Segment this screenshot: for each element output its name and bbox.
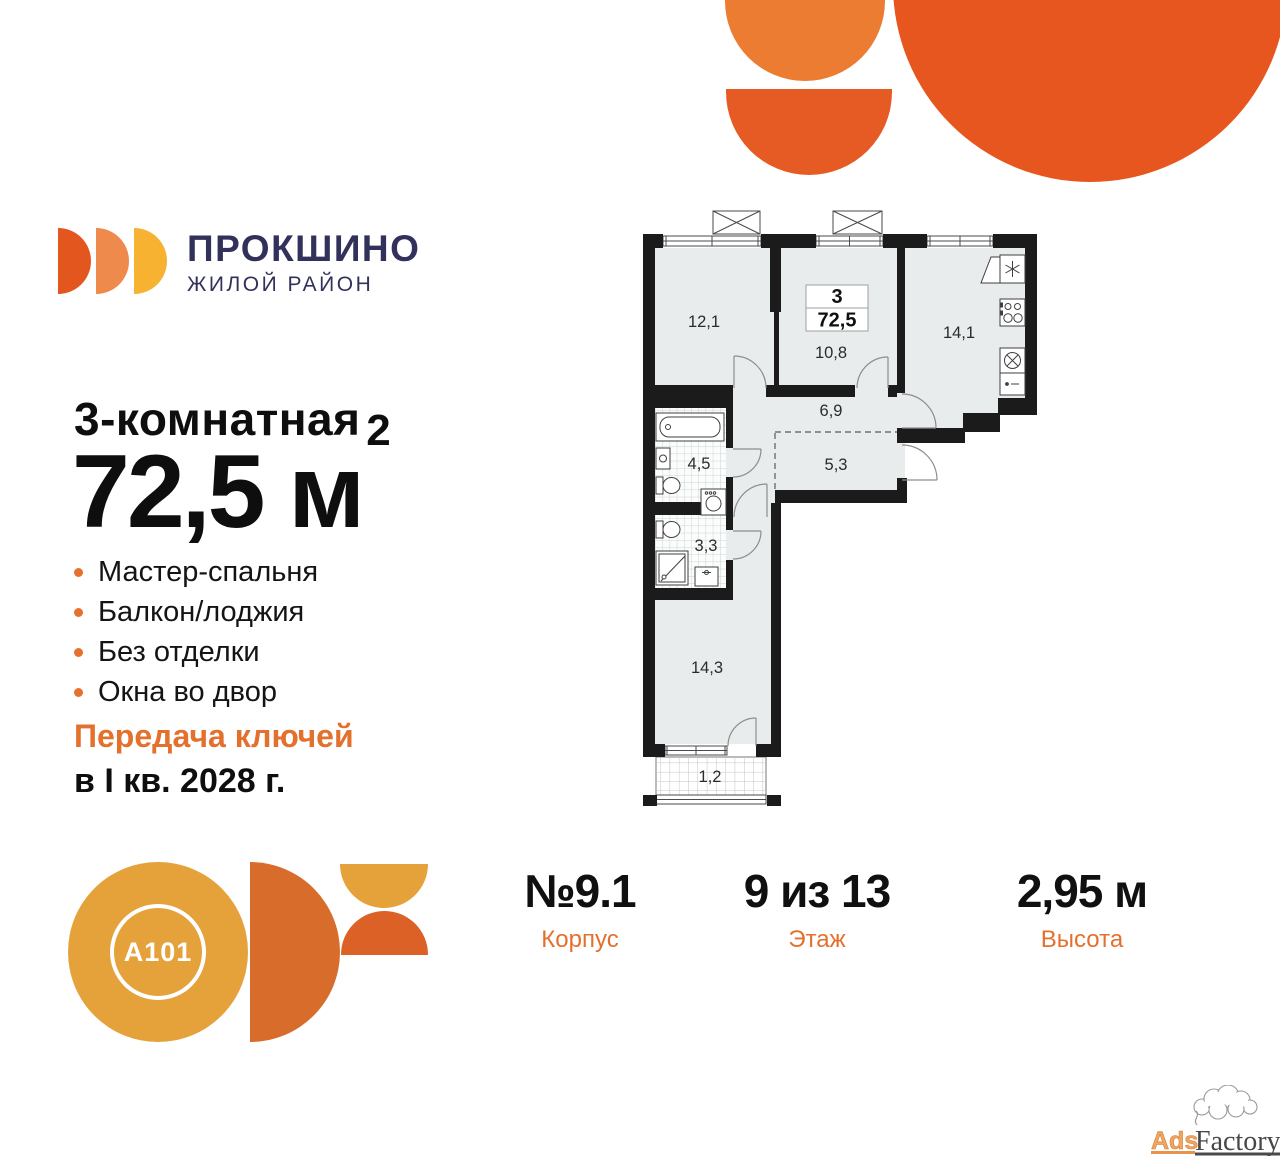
watermark-underline-orange [1151,1151,1195,1154]
vent-shaft-icons [713,211,882,234]
handover-block: Передача ключей в I кв. 2028 г. [74,720,354,798]
room-area-hallway: 6,9 [820,402,843,420]
shower-icon [656,551,688,585]
handover-title: Передача ключей [74,720,354,752]
bathtub-icon [656,413,724,441]
feature-item: Мастер-спальня [74,552,318,592]
room-area-balcony: 1,2 [699,768,722,786]
feature-label: Окна во двор [98,676,277,709]
building-number: №9.1 [470,868,690,914]
smoke-cloud-icon [1194,1085,1257,1125]
bullet-icon [74,648,83,657]
watermark: Ads Factory [1140,1085,1280,1160]
feature-item: Окна во двор [74,672,318,712]
logo-halfdisc-mid-icon [96,228,129,294]
a101-halfdisc-icon [250,862,340,1042]
floor-number: 9 из 13 [707,868,927,914]
floor-label: Этаж [707,928,927,952]
toilet-icon [656,477,680,494]
detail-floor: 9 из 13 Этаж [707,868,927,952]
brand-logo: ПРОКШИНО ЖИЛОЙ РАЙОН [58,228,420,295]
decor-large-circle-icon [893,0,1280,182]
stove-icon [1000,299,1025,326]
a101-hourglass-bottom-icon [341,911,428,955]
brand-wordmark: ПРОКШИНО [187,230,420,267]
sink-icon [695,567,718,586]
bullet-icon [74,688,83,697]
room-area-kitchen: 14,1 [943,324,975,342]
feature-item: Без отделки [74,632,318,672]
room-area-bathroom: 4,5 [688,455,711,473]
area-value: 72,5 м [72,434,362,550]
watermark-ads-text: Ads [1151,1127,1198,1155]
listing-poster: ПРОКШИНО ЖИЛОЙ РАЙОН 3-комнатная 72,5 м2… [0,0,1280,1160]
floor-plan: 3 72,5 12,1 10,8 14,1 6,9 4,5 5,3 3,3 14… [630,195,1060,815]
detail-building: №9.1 Корпус [470,868,690,952]
decor-semicircle-dark-icon [726,89,892,175]
kitchen-sink-icon [1000,348,1025,373]
brand-text: ПРОКШИНО ЖИЛОЙ РАЙОН [187,228,420,295]
sink-icon [656,448,670,469]
feature-label: Мастер-спальня [98,556,318,589]
building-label: Корпус [470,928,690,952]
plan-info-box: 3 72,5 [806,285,868,332]
logo-halfdisc-yellow-icon [134,228,167,294]
ceiling-height-value: 2,95 м [972,868,1192,914]
detail-ceiling-height: 2,95 м Высота [972,868,1192,952]
brand-logo-marks-icon [58,228,167,294]
bullet-icon [74,568,83,577]
room-area-bedroom-1: 12,1 [688,313,720,331]
ceiling-height-label: Высота [972,928,1192,952]
a101-hourglass-top-icon [340,864,428,908]
feature-label: Без отделки [98,636,260,669]
room-area-bedroom-2: 10,8 [815,344,847,362]
decor-semicircle-light-icon [725,0,885,81]
listing-area: 72,5 м2 [72,438,391,547]
toilet-icon [656,521,680,538]
brand-tagline: ЖИЛОЙ РАЙОН [187,274,420,295]
watermark-underline-dark [1195,1153,1280,1156]
features-list: Мастер-спальня Балкон/лоджия Без отделки… [74,552,318,712]
info-total-area: 72,5 [818,310,857,332]
feature-label: Балкон/лоджия [98,596,304,629]
handover-date: в I кв. 2028 г. [74,764,354,798]
cabinet-icon [1000,373,1025,395]
bullet-icon [74,608,83,617]
developer-logo: A101 [68,862,448,1044]
room-area-wc: 3,3 [695,537,718,555]
room-area-master-bedroom: 14,3 [691,659,723,677]
washing-machine-icon [701,489,726,515]
info-rooms-count: 3 [831,286,842,308]
area-superscript: 2 [366,406,390,455]
a101-ring-label: A101 [110,904,206,1000]
room-area-corridor: 5,3 [825,456,848,474]
feature-item: Балкон/лоджия [74,592,318,632]
watermark-factory-text: Factory [1195,1126,1280,1157]
logo-halfdisc-dark-icon [58,228,91,294]
